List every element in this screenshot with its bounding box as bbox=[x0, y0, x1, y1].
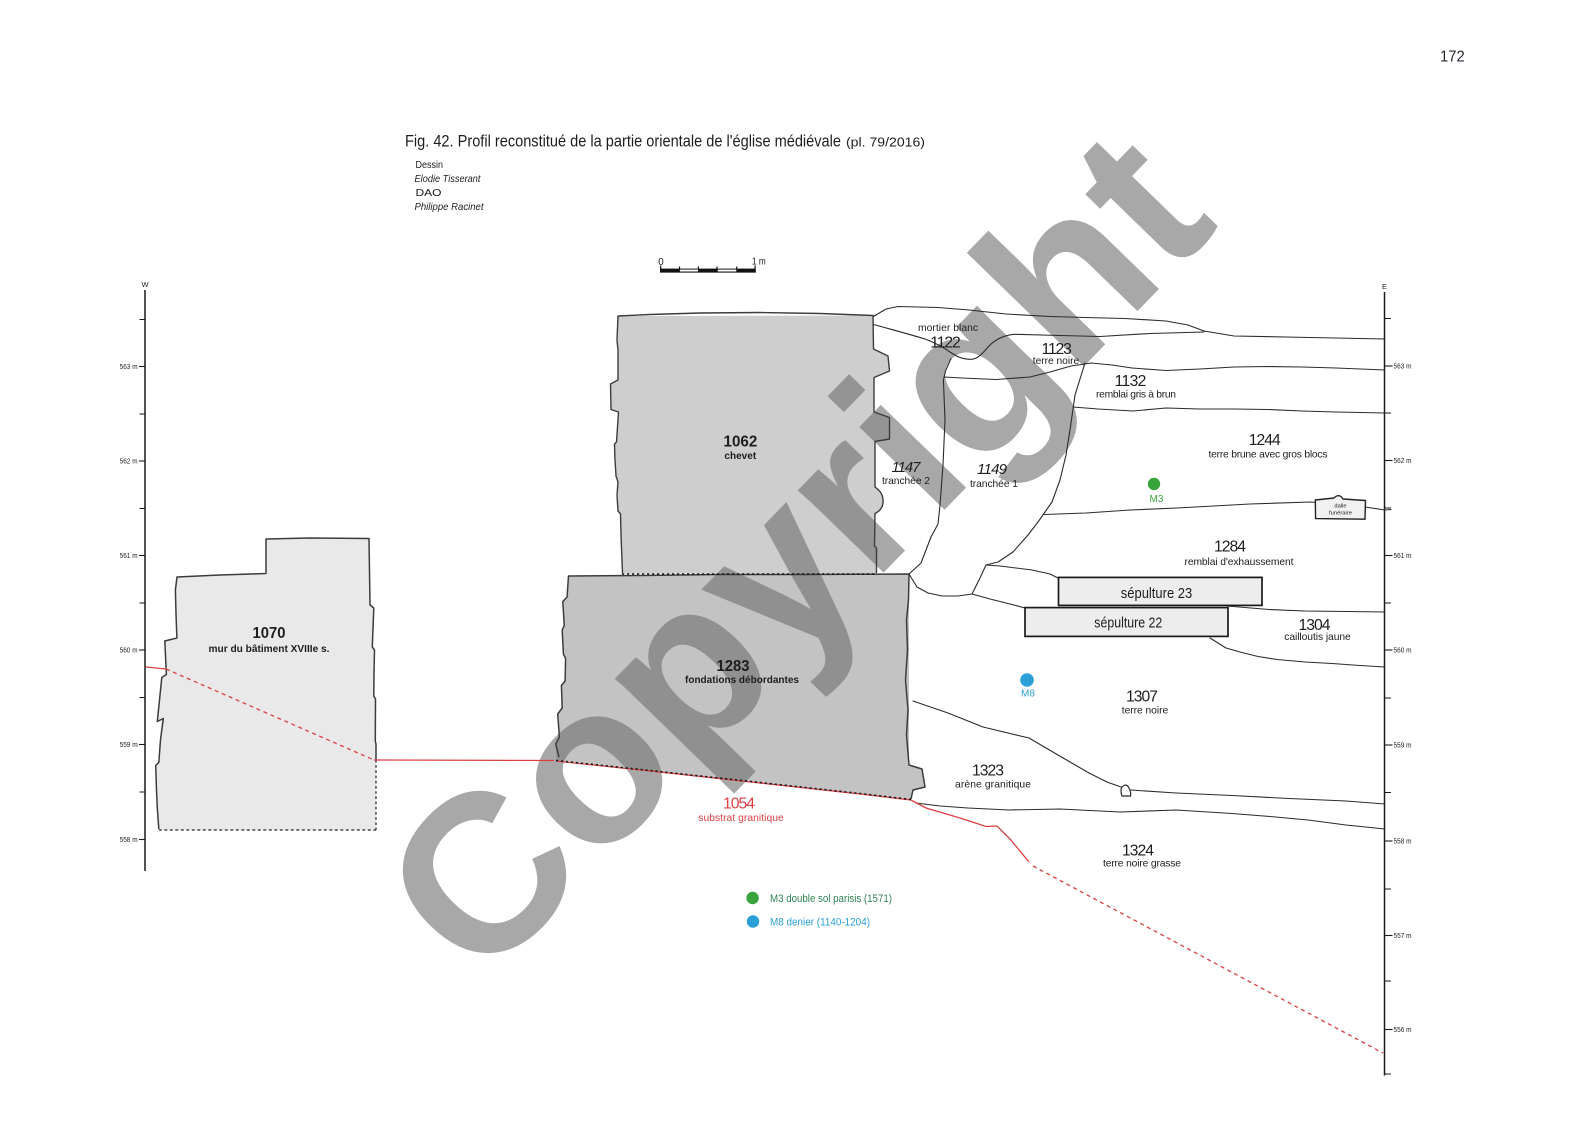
svg-text:563 m: 563 m bbox=[120, 362, 138, 371]
svg-text:1 m: 1 m bbox=[752, 257, 766, 268]
svg-text:Fig. 42. Profil reconstitué de: Fig. 42. Profil reconstitué de la partie… bbox=[405, 131, 841, 150]
svg-text:(pl. 79/2016): (pl. 79/2016) bbox=[846, 135, 925, 149]
svg-text:substrat granitique: substrat granitique bbox=[698, 813, 784, 824]
svg-text:dalle: dalle bbox=[1334, 504, 1346, 510]
svg-text:M8: M8 bbox=[1021, 689, 1035, 700]
svg-text:559 m: 559 m bbox=[120, 740, 138, 749]
svg-text:1284: 1284 bbox=[1214, 539, 1246, 556]
svg-text:tranchée 1: tranchée 1 bbox=[970, 479, 1018, 490]
svg-text:1323: 1323 bbox=[972, 763, 1004, 780]
svg-text:1147: 1147 bbox=[892, 459, 922, 476]
svg-text:1283: 1283 bbox=[717, 658, 750, 675]
svg-text:funéraire: funéraire bbox=[1329, 511, 1352, 517]
svg-text:1324: 1324 bbox=[1122, 843, 1154, 860]
svg-text:561 m: 561 m bbox=[1394, 551, 1412, 560]
svg-text:1132: 1132 bbox=[1115, 373, 1147, 390]
svg-text:M3: M3 bbox=[1150, 494, 1164, 505]
svg-text:arène granitique: arène granitique bbox=[955, 780, 1031, 791]
svg-text:1062: 1062 bbox=[724, 433, 758, 450]
svg-text:M3 double sol parisis (1571): M3 double sol parisis (1571) bbox=[770, 893, 892, 905]
svg-text:sépulture 23: sépulture 23 bbox=[1121, 585, 1192, 602]
svg-text:mortier blanc: mortier blanc bbox=[918, 323, 978, 334]
svg-text:557 m: 557 m bbox=[1394, 931, 1412, 940]
svg-text:terre brune avec gros blocs: terre brune avec gros blocs bbox=[1209, 450, 1328, 461]
svg-text:560 m: 560 m bbox=[120, 646, 138, 655]
svg-text:1149: 1149 bbox=[977, 461, 1008, 478]
svg-text:560 m: 560 m bbox=[1394, 646, 1412, 655]
svg-text:556 m: 556 m bbox=[1394, 1025, 1412, 1034]
svg-text:172: 172 bbox=[1440, 49, 1465, 66]
svg-text:terre noire: terre noire bbox=[1033, 356, 1080, 367]
svg-text:sépulture 22: sépulture 22 bbox=[1094, 615, 1162, 632]
svg-text:561 m: 561 m bbox=[120, 551, 138, 560]
svg-text:1244: 1244 bbox=[1249, 432, 1281, 449]
svg-text:0: 0 bbox=[658, 257, 664, 268]
svg-text:fondations débordantes: fondations débordantes bbox=[685, 675, 799, 686]
svg-text:558 m: 558 m bbox=[1394, 837, 1412, 846]
svg-text:1054: 1054 bbox=[723, 796, 755, 813]
svg-text:W: W bbox=[141, 280, 149, 289]
svg-text:559 m: 559 m bbox=[1394, 741, 1412, 750]
svg-text:563 m: 563 m bbox=[1394, 362, 1412, 371]
svg-text:1307: 1307 bbox=[1126, 689, 1158, 706]
svg-text:DAO: DAO bbox=[416, 188, 442, 199]
svg-text:1070: 1070 bbox=[253, 625, 286, 642]
svg-text:terre noire grasse: terre noire grasse bbox=[1103, 859, 1181, 870]
svg-text:Dessin: Dessin bbox=[416, 160, 444, 171]
svg-text:E: E bbox=[1382, 282, 1387, 291]
svg-text:Elodie Tisserant: Elodie Tisserant bbox=[415, 174, 482, 185]
svg-text:558 m: 558 m bbox=[120, 835, 138, 844]
svg-text:mur du bâtiment XVIIIe s.: mur du bâtiment XVIIIe s. bbox=[209, 644, 330, 655]
svg-text:1122: 1122 bbox=[930, 334, 960, 351]
svg-text:chevet: chevet bbox=[724, 451, 756, 462]
svg-text:562 m: 562 m bbox=[120, 457, 138, 466]
svg-text:Philippe Racinet: Philippe Racinet bbox=[415, 202, 485, 213]
svg-text:terre noire: terre noire bbox=[1122, 706, 1169, 717]
svg-text:M8 denier (1140-1204): M8 denier (1140-1204) bbox=[770, 916, 870, 928]
svg-text:remblai gris à brun: remblai gris à brun bbox=[1096, 390, 1176, 401]
svg-text:cailloutis jaune: cailloutis jaune bbox=[1284, 632, 1351, 643]
svg-text:remblai d'exhaussement: remblai d'exhaussement bbox=[1185, 557, 1294, 568]
svg-text:562 m: 562 m bbox=[1394, 456, 1412, 465]
svg-text:tranchée 2: tranchée 2 bbox=[882, 476, 930, 487]
